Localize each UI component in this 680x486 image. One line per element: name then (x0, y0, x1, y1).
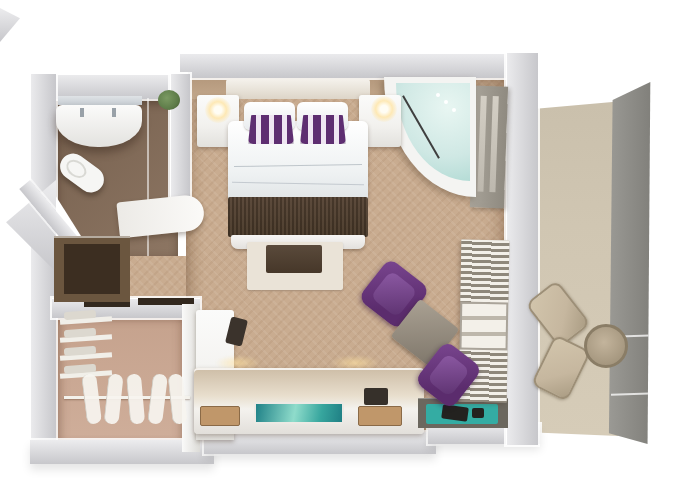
corner-render-artifact (0, 8, 20, 42)
vanity-mirror (58, 96, 142, 105)
wood-tray-right (358, 406, 402, 426)
floorplan-render (0, 0, 680, 486)
right-wall (506, 53, 538, 445)
minibar-interior (64, 244, 120, 294)
faucet (80, 108, 84, 117)
tub-jet (452, 108, 456, 112)
sheet-fold (234, 164, 362, 167)
toilet-seat (63, 156, 90, 182)
balcony-partition-panel (608, 82, 654, 444)
tub-jet (436, 93, 440, 97)
linen-blocks (462, 304, 507, 349)
towel-stack (460, 240, 509, 303)
bed-runner (228, 197, 368, 237)
panel-seam (611, 393, 652, 396)
minibar-cabinet (54, 236, 130, 302)
bottom-wall-center (204, 432, 436, 454)
door-panel-stripe (489, 96, 498, 192)
sheet-fold (232, 182, 364, 185)
ottoman (266, 245, 322, 273)
pillow-purple-left (248, 115, 294, 144)
plant (158, 90, 180, 110)
bed-mattress (228, 121, 368, 203)
chair-cushion (427, 353, 471, 398)
pillow-purple-right (300, 115, 346, 144)
headboard (226, 79, 370, 99)
lamp-left (205, 97, 231, 123)
tub-jet (444, 100, 448, 104)
console-box (364, 388, 388, 405)
outdoor-table (584, 324, 628, 368)
faucet (112, 108, 116, 117)
top-wall-bedroom (180, 53, 538, 78)
lamp-right (371, 96, 397, 122)
tray-item (472, 408, 484, 418)
wood-tray-left (200, 406, 240, 426)
tv-screen (254, 402, 344, 424)
door-panel-stripe (477, 96, 486, 192)
